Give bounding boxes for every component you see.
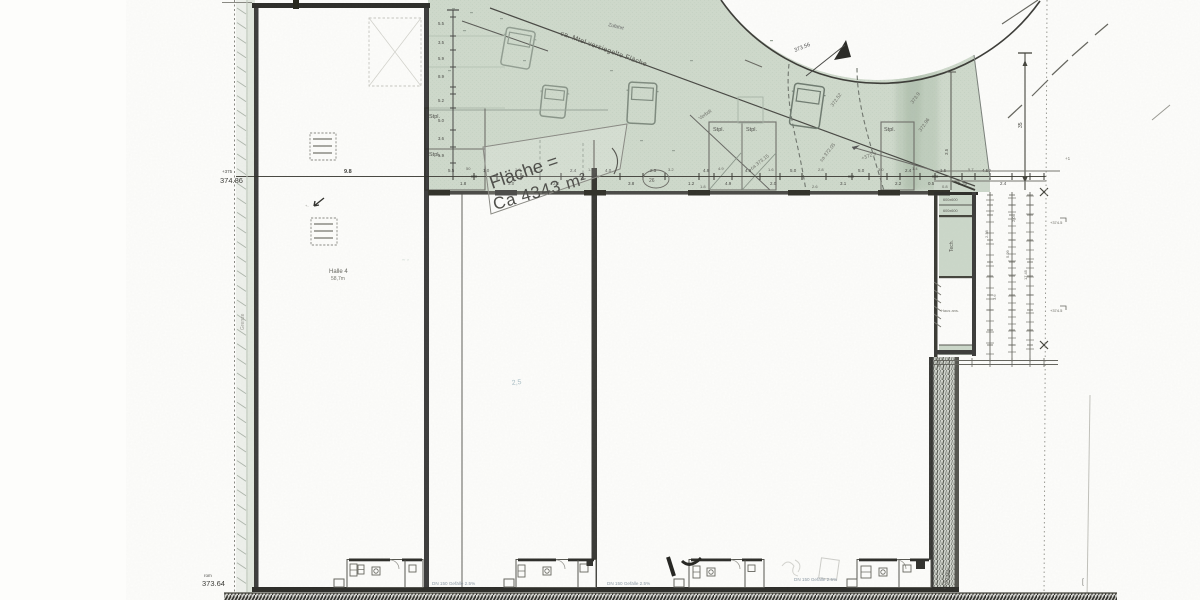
svg-text:rom: rom bbox=[204, 573, 212, 578]
